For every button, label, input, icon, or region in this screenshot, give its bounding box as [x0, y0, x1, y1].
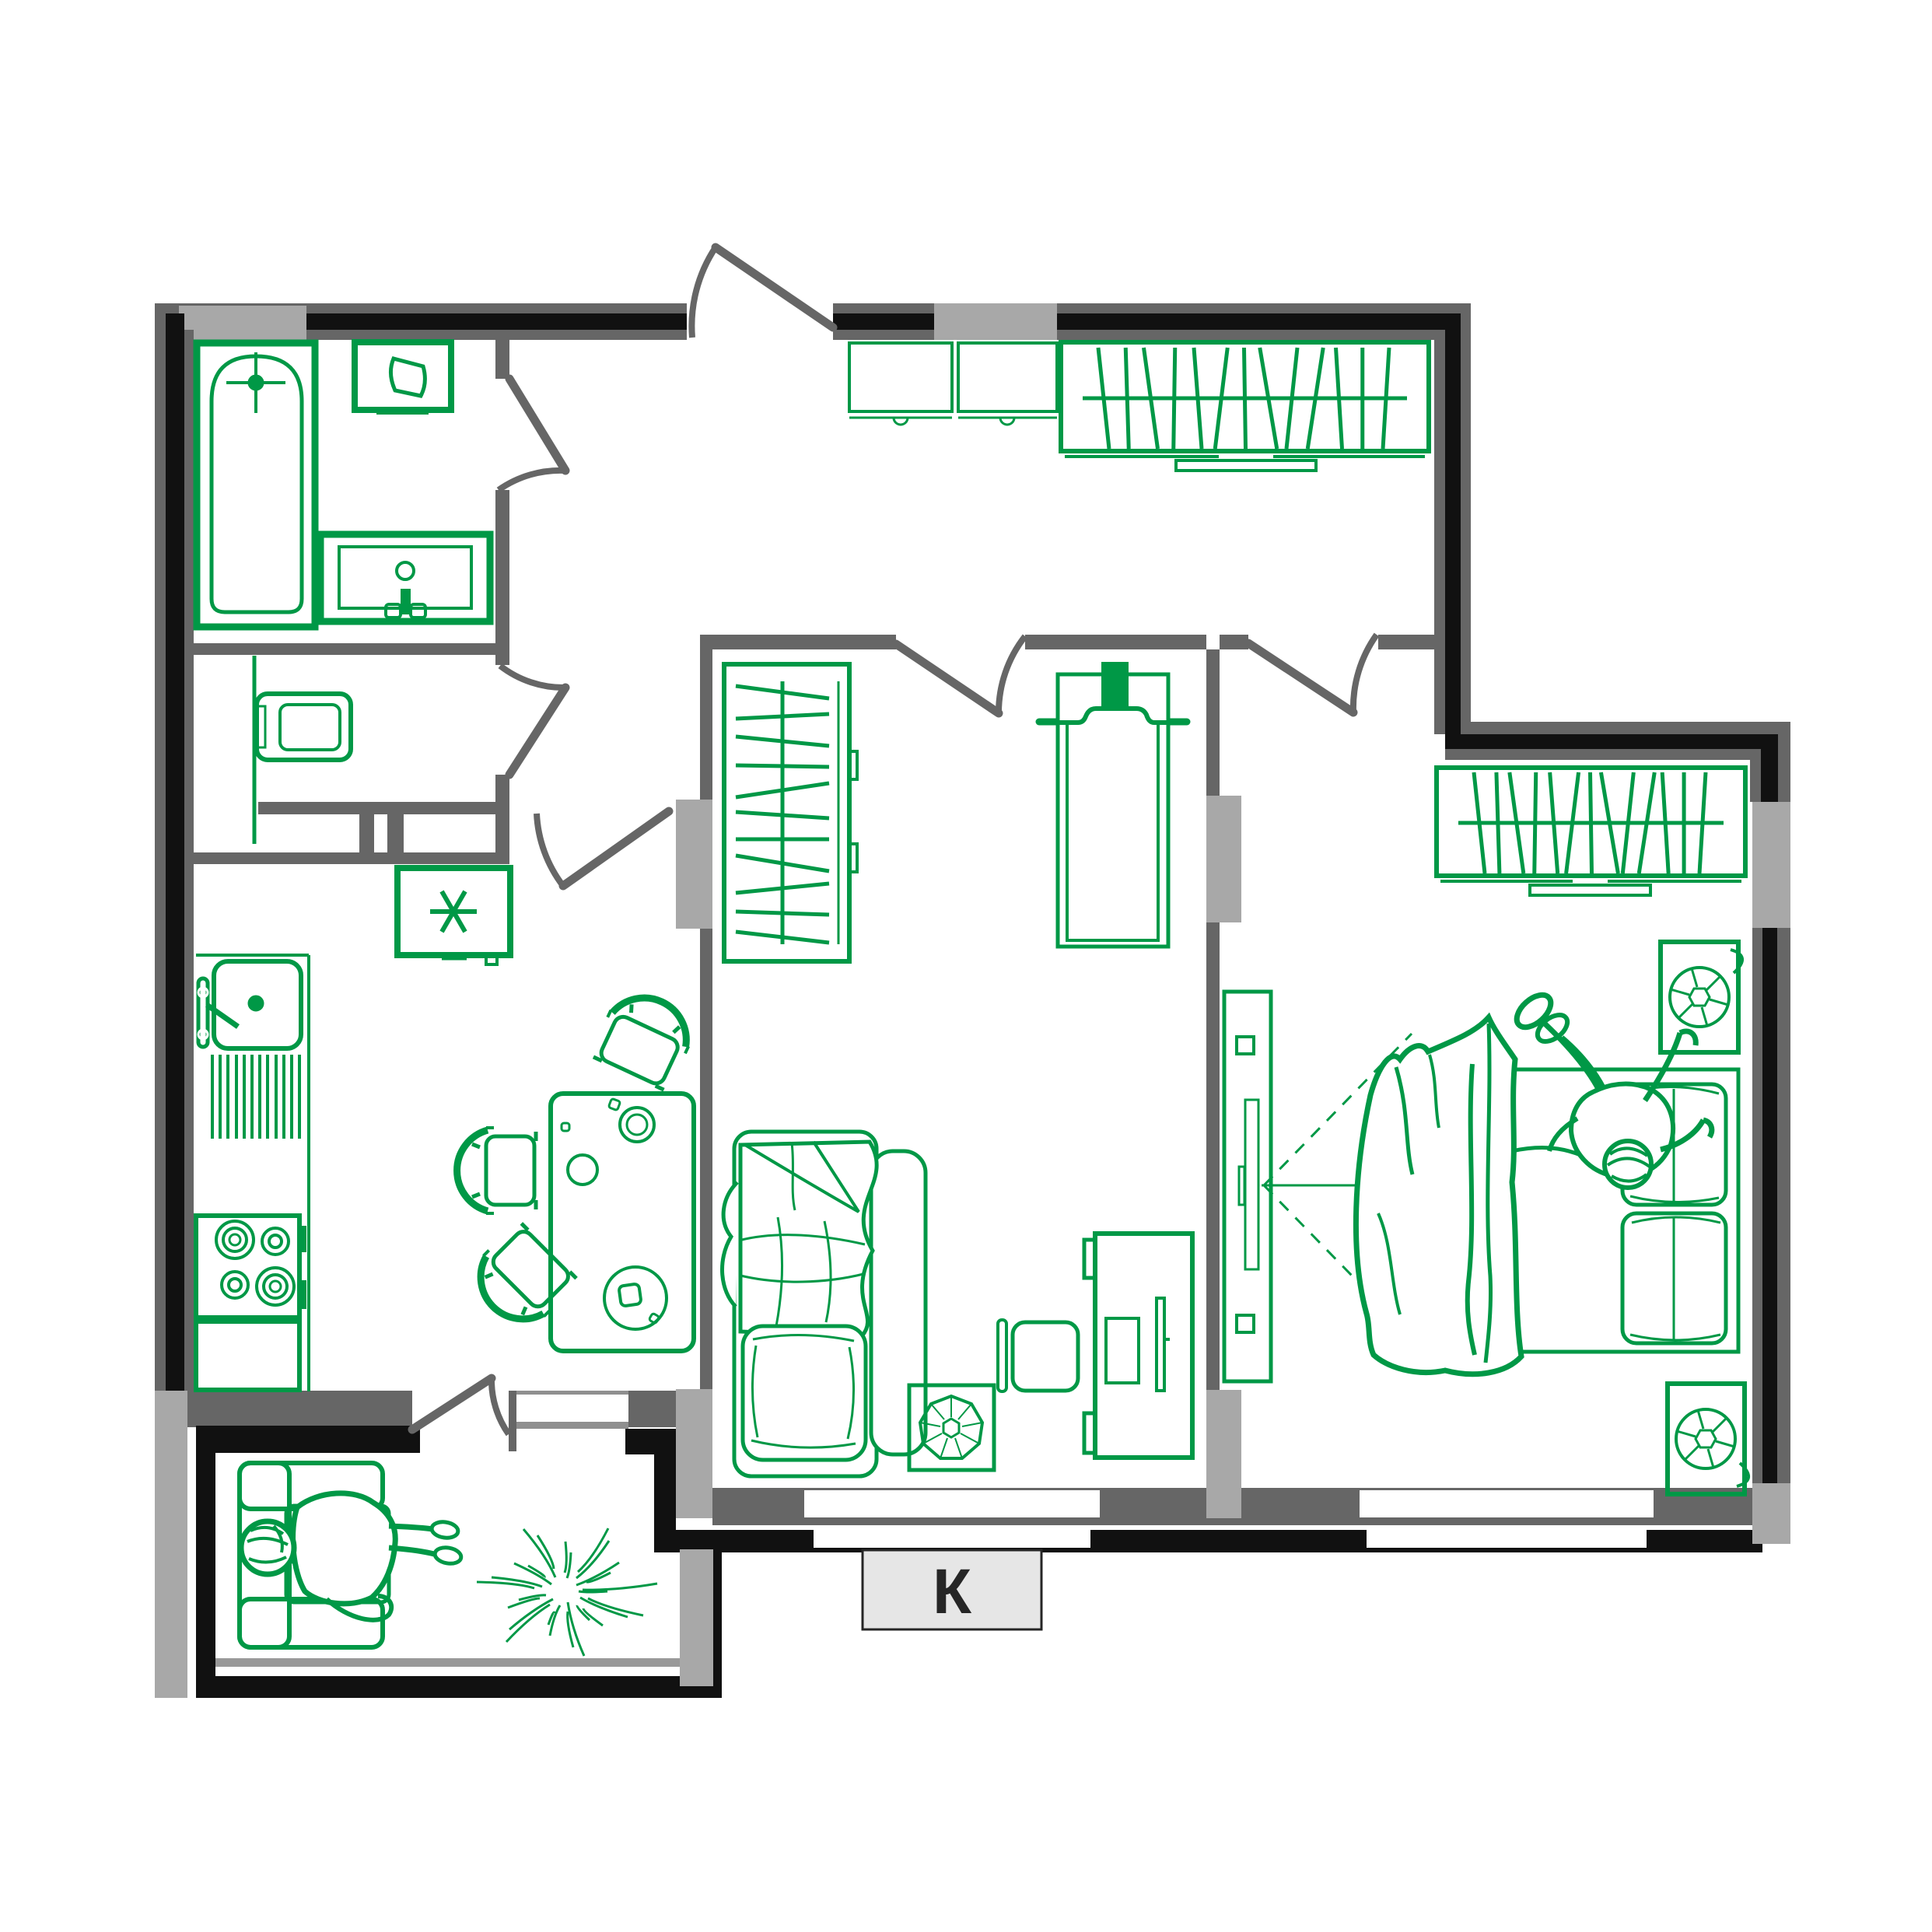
- svg-text:К: К: [933, 1556, 972, 1627]
